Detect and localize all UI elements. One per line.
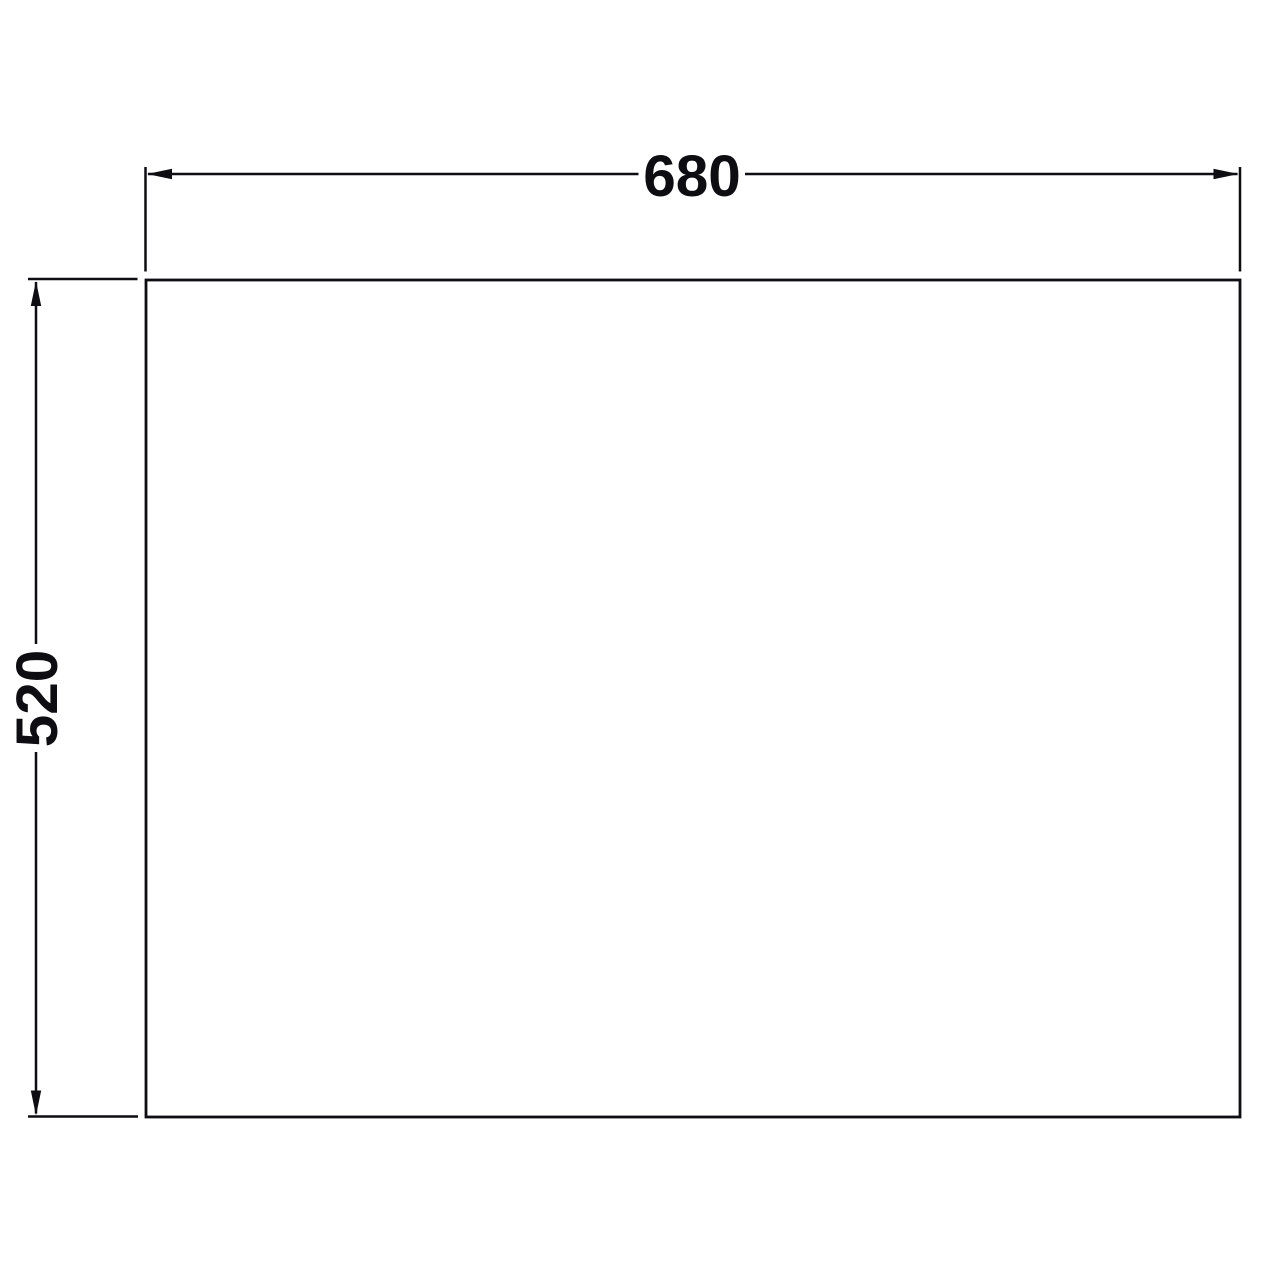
svg-text:680: 680	[643, 144, 741, 209]
svg-text:520: 520	[5, 650, 70, 748]
